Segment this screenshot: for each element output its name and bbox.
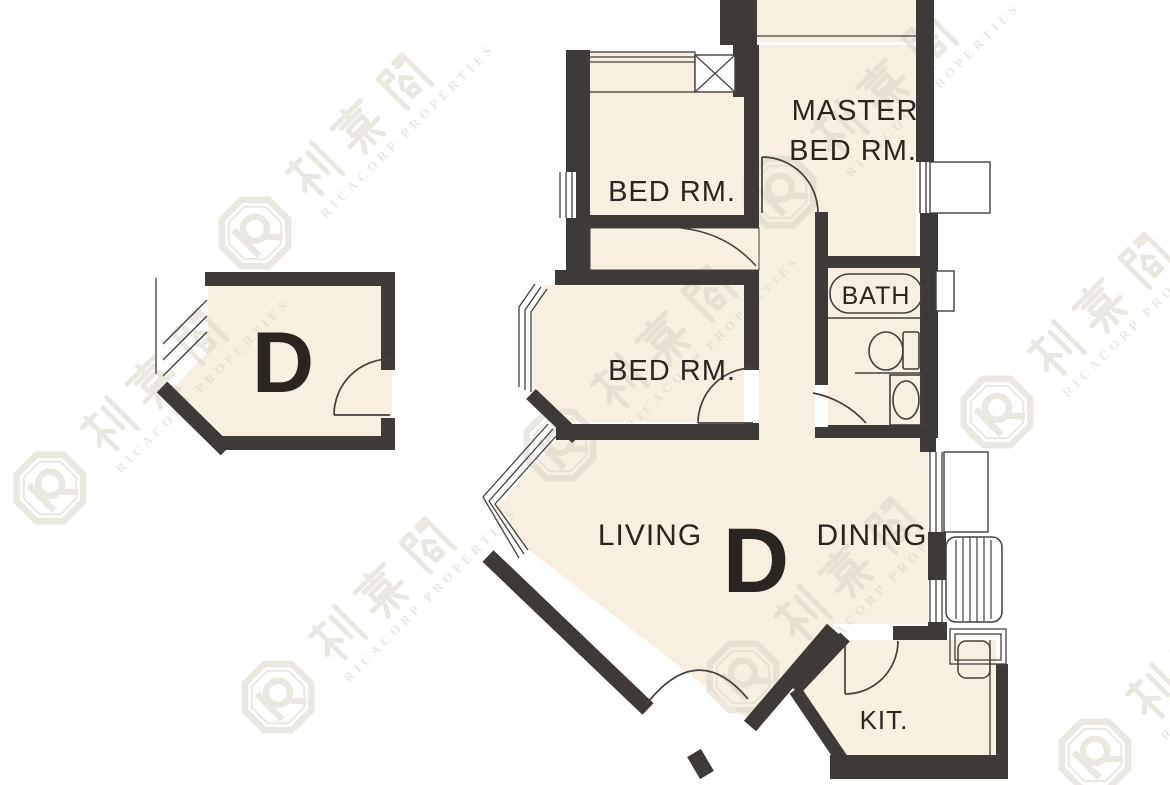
- bedroom1-label: BED RM.: [608, 176, 736, 208]
- master-bedroom-label-line2: BED RM.: [789, 135, 917, 167]
- closet-strip-floor: [590, 228, 759, 270]
- bedroom1-window: [556, 172, 576, 218]
- unit-letter-main: D: [723, 510, 789, 612]
- louver-grille: [946, 537, 1002, 622]
- dining-window-lower: [928, 580, 944, 622]
- unit-letter-keyplan: D: [252, 315, 314, 411]
- kitchen-label: KIT.: [860, 705, 909, 735]
- bathroom-label: BATH: [842, 282, 911, 310]
- bedroom2-label: BED RM.: [608, 355, 736, 387]
- ac-platform-box-2: [944, 452, 988, 532]
- master-bedroom-label-line1: MASTER: [792, 95, 919, 127]
- corridor-floor: [759, 212, 815, 440]
- ac-platform-box: [930, 162, 990, 213]
- ac-shaft-box: [695, 55, 735, 92]
- floor-plan-image: RICACORP PROPERTIES: [0, 0, 1170, 785]
- dining-window-upper: [928, 452, 988, 532]
- dining-label: DINING: [817, 519, 928, 552]
- floor-plan-svg: RICACORP PROPERTIES: [0, 0, 1170, 785]
- living-label: LIVING: [598, 519, 702, 552]
- bath-window-box: [936, 271, 954, 311]
- bedroom1-bay-floor: [588, 52, 695, 92]
- master-window: [916, 162, 990, 213]
